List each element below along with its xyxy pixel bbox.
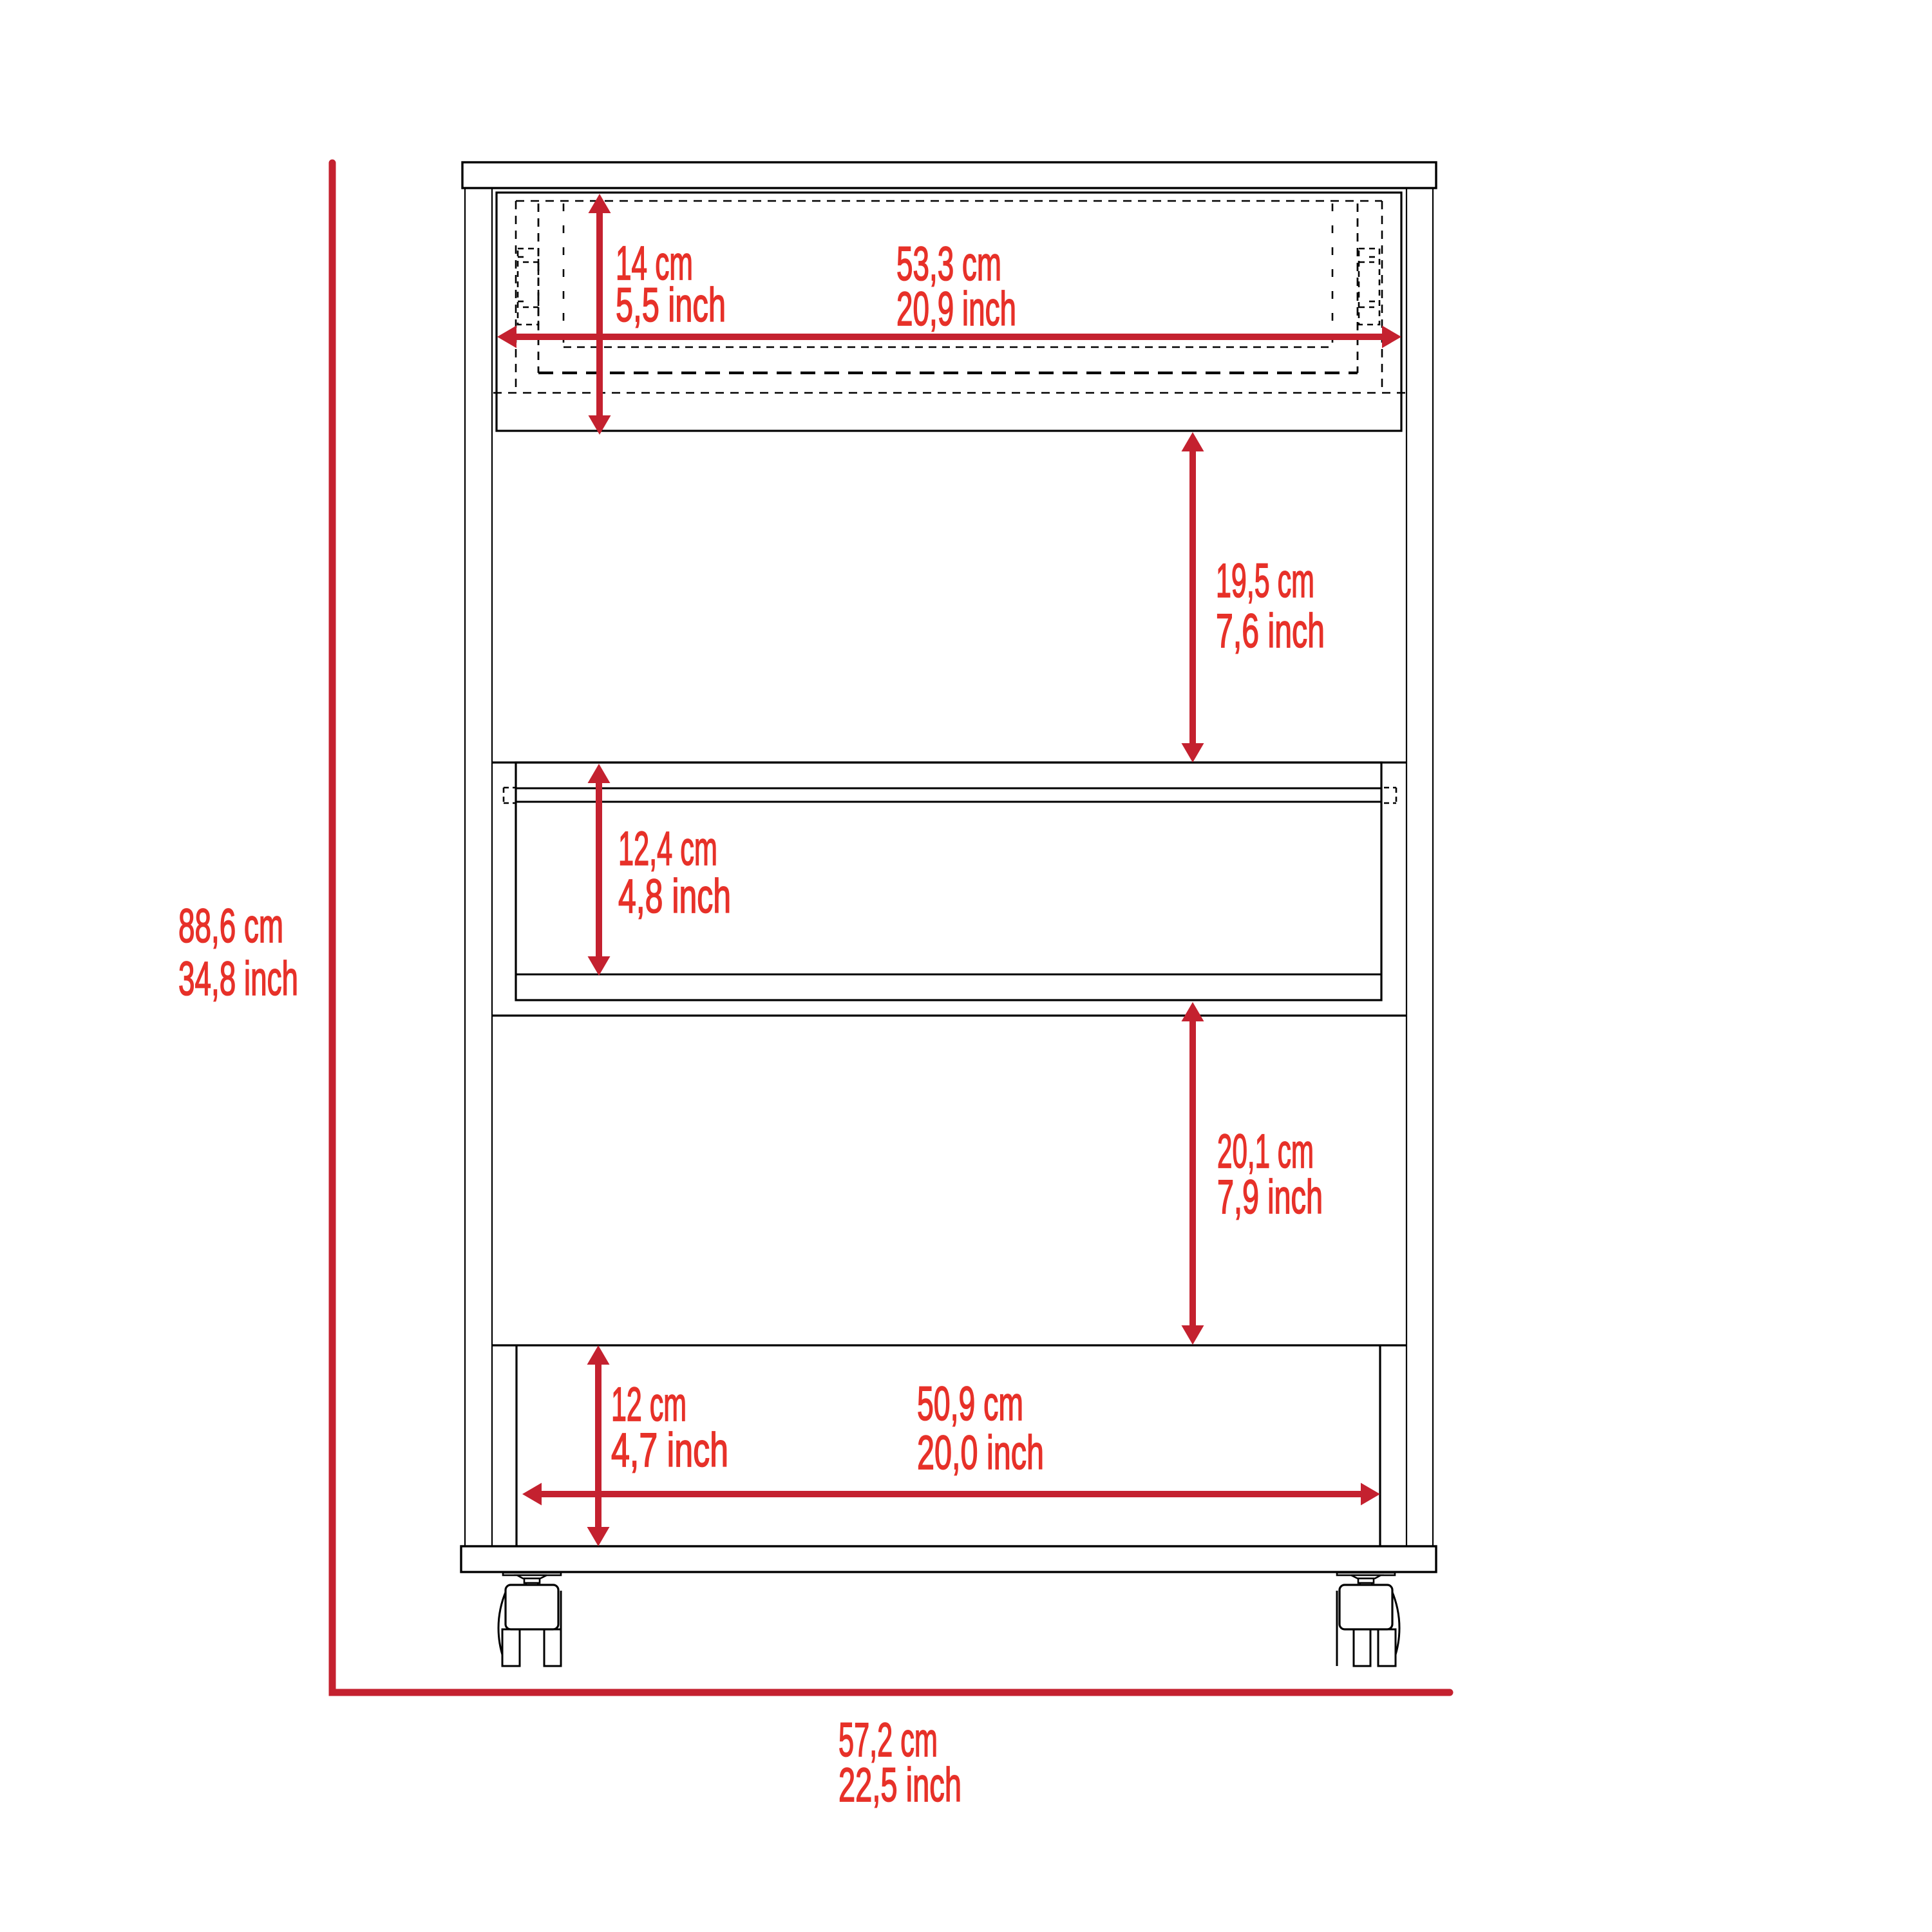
svg-text:19,5 cm: 19,5 cm (1216, 554, 1314, 607)
svg-text:7,6 inch: 7,6 inch (1216, 604, 1325, 658)
svg-text:34,8 inch: 34,8 inch (178, 952, 298, 1005)
svg-text:4,7 inch: 4,7 inch (611, 1423, 728, 1477)
svg-text:12,4 cm: 12,4 cm (618, 822, 717, 875)
svg-text:7,9 inch: 7,9 inch (1217, 1170, 1323, 1224)
svg-text:5,5 inch: 5,5 inch (616, 278, 726, 332)
svg-text:50,9 cm: 50,9 cm (917, 1377, 1023, 1430)
svg-text:20,0 inch: 20,0 inch (917, 1426, 1044, 1479)
svg-text:4,8 inch: 4,8 inch (618, 869, 731, 923)
svg-text:20,9 inch: 20,9 inch (896, 282, 1016, 336)
svg-text:22,5 inch: 22,5 inch (838, 1758, 961, 1812)
svg-text:88,6 cm: 88,6 cm (178, 899, 283, 952)
